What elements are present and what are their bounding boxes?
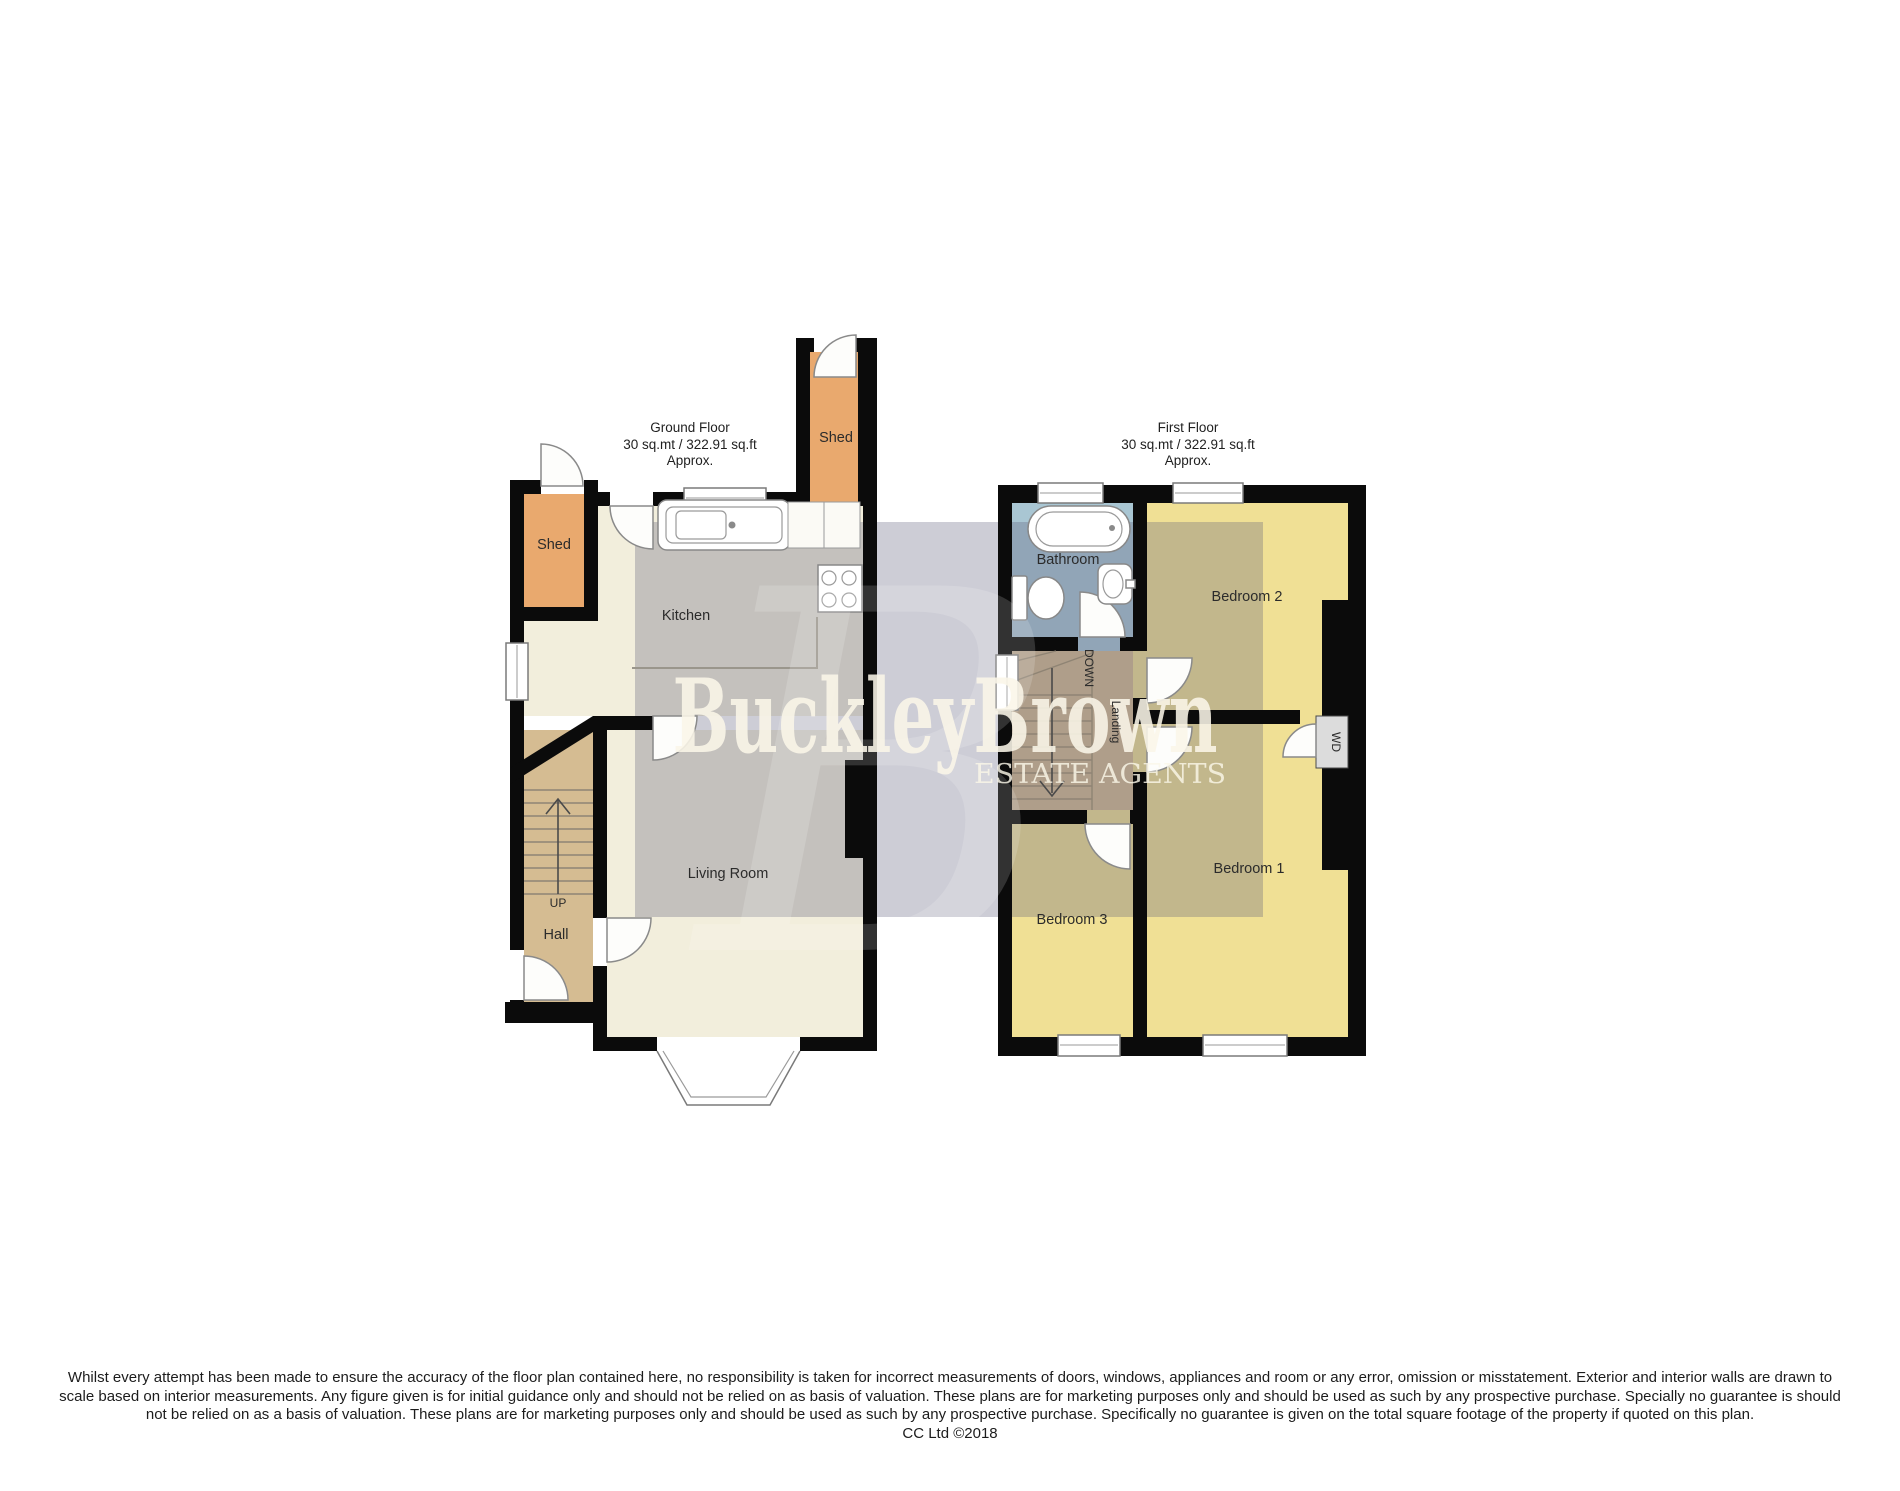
disclaimer-line: Whilst every attempt has been made to en… [0, 1369, 1900, 1388]
disclaimer-line: scale based on interior measurements. An… [0, 1388, 1900, 1407]
wall-segment [1322, 768, 1366, 870]
wall-segment [505, 1002, 607, 1023]
shed-left-label: Shed [537, 537, 571, 553]
wall-segment [510, 700, 524, 950]
stairs-up-label: UP [550, 896, 567, 910]
first-floor-title: First Floor [1158, 420, 1219, 435]
bedroom1-window [1203, 1035, 1287, 1056]
wall-segment [593, 1037, 657, 1051]
bedroom2-label: Bedroom 2 [1212, 589, 1283, 605]
wall-segment [1133, 503, 1147, 651]
floorplan-drawing: B BuckleyBrown ESTATE AGENTS Ground Floo… [0, 0, 1900, 1491]
bedroom3-window [1058, 1035, 1120, 1056]
wall-segment [510, 607, 598, 621]
wall-segment [593, 966, 607, 1002]
wall-segment [1287, 1037, 1366, 1056]
living-room-label: Living Room [688, 866, 769, 882]
disclaimer-line: not be relied on as a basis of valuation… [0, 1406, 1900, 1425]
wall-segment [858, 338, 877, 506]
wd-label: WD [1329, 732, 1343, 752]
bedroom3-label: Bedroom 3 [1037, 912, 1108, 928]
bathroom-label: Bathroom [1037, 552, 1100, 568]
wall-segment [598, 492, 610, 506]
stairs-down-label: DOWN [1082, 649, 1096, 687]
wall-segment [796, 338, 814, 352]
ground-floor-title: Ground Floor [650, 420, 730, 435]
wall-segment [510, 480, 541, 494]
wall-segment [1120, 637, 1147, 651]
wall-segment [584, 480, 598, 621]
shed-top-label: Shed [819, 430, 853, 446]
floorplan-page: B BuckleyBrown ESTATE AGENTS Ground Floo… [0, 0, 1900, 1491]
ground-floor-approx: Approx. [667, 453, 714, 468]
shed-left-door [541, 444, 583, 486]
wall-segment [1130, 810, 1147, 824]
shed-top-door [814, 335, 856, 377]
wall-segment [593, 716, 653, 730]
landing-label: Landing [1109, 701, 1123, 744]
basin-icon [1098, 564, 1135, 604]
wall-segment [1103, 485, 1173, 503]
watermark-tagline: ESTATE AGENTS [974, 759, 1226, 790]
bedroom1-label: Bedroom 1 [1214, 861, 1285, 877]
wall-segment [796, 338, 810, 506]
bedroom2-window [1173, 483, 1243, 503]
kitchen-label: Kitchen [662, 608, 710, 624]
wall-segment [1120, 1037, 1203, 1056]
hall-label: Hall [544, 927, 569, 943]
first-floor-area: 30 sq.mt / 322.91 sq.ft [1121, 437, 1255, 452]
wall-segment [1243, 485, 1366, 503]
wall-segment [1322, 600, 1366, 716]
wall-segment [593, 730, 607, 918]
disclaimer-credit: CC Ltd ©2018 [0, 1425, 1900, 1444]
ground-floor-area: 30 sq.mt / 322.91 sq.ft [623, 437, 757, 452]
first-floor-approx: Approx. [1165, 453, 1212, 468]
hall-window [506, 643, 528, 700]
disclaimer: Whilst every attempt has been made to en… [0, 1369, 1900, 1443]
